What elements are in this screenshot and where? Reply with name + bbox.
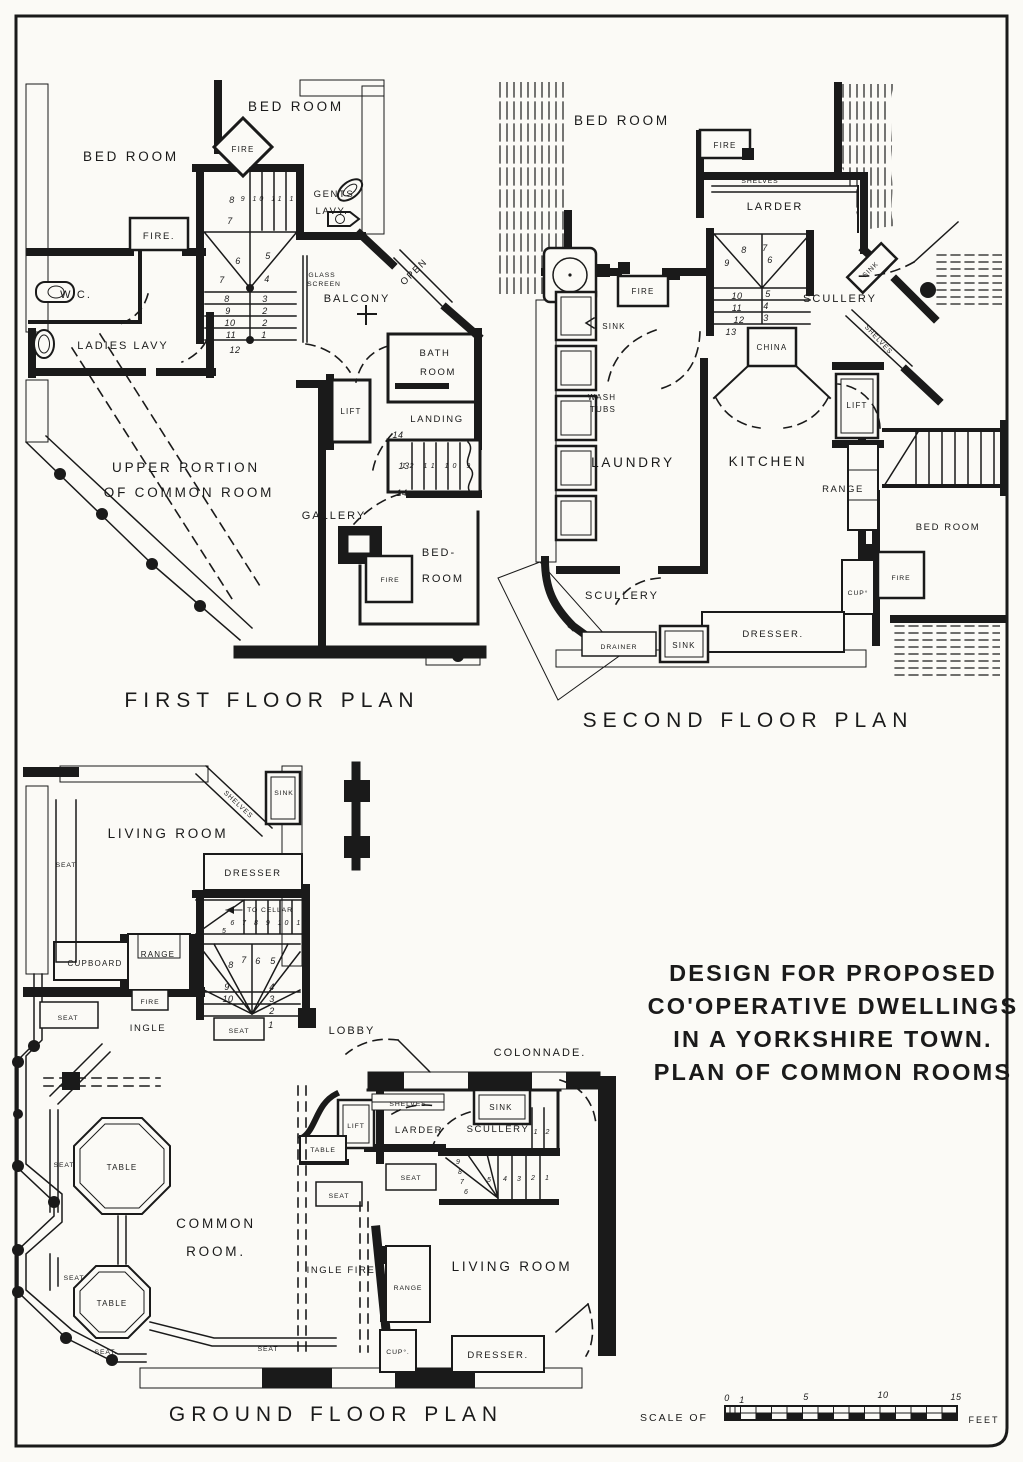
title-line-3: IN A YORKSHIRE TOWN. — [673, 1026, 993, 1052]
label-living-room-top: LIVING ROOM — [108, 826, 229, 841]
title-block: DESIGN FOR PROPOSED CO'OPERATIVE DWELLIN… — [648, 960, 1019, 1085]
label-range: RANGE — [822, 484, 864, 495]
label-colonnade: COLONNADE. — [494, 1047, 587, 1059]
stair-number: 7 — [227, 216, 233, 226]
label-fire: FIRE — [140, 999, 159, 1006]
stair-number: 8 — [224, 294, 230, 304]
label-seat: SEAT — [58, 1015, 79, 1022]
label-range-top: RANGE — [141, 950, 175, 959]
label-larder: LARDER — [395, 1125, 443, 1136]
label-shelves: SHELVES — [741, 178, 778, 185]
stair-number: 5 — [265, 251, 271, 261]
label-wc: W.C. — [60, 289, 92, 301]
stair-number: 4 — [264, 274, 270, 284]
label-fire-top: FIRE — [713, 141, 736, 150]
stair-number: 2 — [530, 1175, 535, 1182]
label-cup: CUP°. — [386, 1348, 409, 1356]
stair-number: 7 — [762, 243, 768, 253]
stair-number: 4 — [503, 1176, 507, 1183]
stair-number: 8 — [228, 960, 234, 970]
stair-number: 9 — [225, 306, 231, 316]
stair-number: 6 — [255, 956, 261, 966]
label-laundry: LAUNDRY — [591, 455, 675, 470]
label-china: CHINA — [757, 343, 788, 352]
stair-number: 1 — [261, 330, 267, 340]
label-seat: SEAT. — [95, 1349, 118, 1356]
label-gents-lavy-2: LAVY. — [315, 206, 348, 217]
stair-number: 12 11 10 9 — [402, 463, 475, 470]
label-fire-small: FIRE — [380, 577, 399, 584]
stair-number: 4 — [269, 982, 275, 992]
stair-number: 7 — [219, 275, 225, 285]
label-living-room-bottom: LIVING ROOM — [452, 1259, 573, 1274]
label-bed-room: BED ROOM — [574, 113, 670, 128]
label-fire-mid: FIRE — [631, 287, 654, 296]
stair-number: 5 — [487, 1177, 491, 1184]
label-bed-room-left: BED ROOM — [83, 149, 179, 164]
walls — [28, 766, 560, 1330]
stair-number: 1 — [268, 1020, 274, 1030]
first-floor-caption: FIRST FLOOR PLAN — [124, 689, 419, 712]
stair-number: 9 — [456, 1159, 460, 1166]
stair-number: 12 — [229, 345, 240, 355]
label-sink-left: SINK — [602, 322, 625, 331]
label-table-lift: TABLE — [310, 1147, 336, 1154]
label-fire-right: FIRE — [891, 575, 910, 582]
stair-number: 1 2 — [534, 1129, 553, 1136]
label-bed-room-small: BED- — [422, 547, 456, 559]
label-open: OPEN — [398, 257, 430, 288]
scale-tick-15: 15 — [950, 1392, 962, 1402]
title-line-4: PLAN OF COMMON ROOMS — [654, 1059, 1013, 1085]
stair-number: 11 — [732, 303, 742, 313]
ground-floor-caption: GROUND FLOOR PLAN — [169, 1403, 503, 1426]
label-scullery-bottom: SCULLERY — [585, 590, 659, 602]
stair-number: 3 — [269, 994, 275, 1004]
stair-number: 8 — [229, 195, 235, 205]
stair-number: 11 — [226, 330, 236, 340]
label-fire-diamond: FIRE — [231, 145, 254, 154]
stair-number: 6 — [464, 1189, 468, 1196]
stair-number: 8 — [741, 245, 747, 255]
label-scullery-top: SCULLERY — [803, 293, 877, 305]
scale-bar: SCALE OF 0 1 5 10 15 FEET — [640, 1390, 999, 1425]
label-cupboard: CUPBOARD — [68, 959, 123, 968]
label-gallery: GALLERY — [302, 510, 367, 522]
stair-number: 3 — [517, 1176, 521, 1183]
scale-prefix: SCALE OF — [640, 1412, 708, 1424]
scale-tick-10: 10 — [877, 1390, 888, 1400]
second-floor-caption: SECOND FLOOR PLAN — [583, 709, 914, 732]
stair-number: 2 — [261, 306, 268, 316]
label-sink-bottom: SINK — [672, 641, 695, 650]
label-scullery: SCULLERY — [467, 1124, 530, 1135]
scale-tick-0: 0 — [724, 1393, 730, 1403]
second-floor-plan: BED ROOM FIRE SHELVES LARDER SCULLERY SI… — [497, 82, 1004, 732]
fixtures — [40, 766, 544, 1372]
ground-floor-plan: LIVING ROOM SINK SHELVES DRESSER TO CELL… — [12, 766, 616, 1426]
label-table-2: TABLE — [97, 1299, 128, 1308]
label-balcony: BALCONY — [324, 293, 391, 305]
stair-number: 13 — [725, 327, 736, 337]
stair-number: 14 — [396, 488, 407, 498]
label-drainer: DRAINER — [601, 644, 638, 651]
drawing-sheet: BED ROOM BED ROOM FIRE GENTS LAVY. FIRE.… — [0, 0, 1023, 1462]
label-kitchen: KITCHEN — [729, 454, 808, 469]
first-floor-plan: BED ROOM BED ROOM FIRE GENTS LAVY. FIRE.… — [26, 80, 480, 712]
label-table-1: TABLE — [107, 1163, 138, 1172]
title-line-1: DESIGN FOR PROPOSED — [669, 960, 997, 986]
stair-number: 6 — [767, 255, 773, 265]
stair-number: 3 — [763, 313, 769, 323]
label-bed-room-right: BED ROOM — [916, 522, 981, 533]
stair-number: 10 — [224, 318, 235, 328]
label-shelves-top: SHELVES — [222, 790, 254, 820]
walls — [545, 86, 1004, 650]
label-larder: LARDER — [747, 201, 804, 213]
label-dresser: DRESSER. — [742, 629, 803, 640]
label-seat: SEAT — [401, 1175, 422, 1182]
label-bed-room-small-2: ROOM — [422, 573, 464, 585]
label-seat: SEAT — [229, 1028, 250, 1035]
stair-number: 5 — [270, 956, 276, 966]
label-ingle: INGLE — [130, 1023, 167, 1034]
label-seat: SEAT — [258, 1346, 279, 1353]
label-seat: SEAT — [54, 1162, 75, 1169]
stair-number: 9 — [724, 258, 730, 268]
label-seat: SEAT — [64, 1275, 85, 1282]
title-line-2: CO'OPERATIVE DWELLINGS — [648, 993, 1019, 1019]
label-common-room-2: ROOM. — [186, 1244, 246, 1259]
stair-number: 2 — [268, 1006, 275, 1016]
label-lift: LIFT — [846, 401, 867, 410]
scale-suffix: FEET — [968, 1415, 999, 1425]
label-dresser-top: DRESSER — [224, 868, 281, 879]
label-fire-left: FIRE. — [143, 231, 175, 242]
stair-number: 1 — [545, 1175, 549, 1182]
scale-tick-1: 1 — [739, 1395, 745, 1405]
label-glass-screen-2: SCREEN — [307, 281, 341, 288]
stair-number: 5 — [222, 928, 226, 935]
label-gents-lavy: GENTS — [314, 189, 355, 200]
floor-plan-drawing: BED ROOM BED ROOM FIRE GENTS LAVY. FIRE.… — [0, 0, 1023, 1462]
label-bath-room-2: ROOM — [420, 367, 456, 378]
stair-number: 10 — [731, 291, 742, 301]
stair-number: 7 — [241, 955, 247, 965]
label-cupboard: CUP° — [848, 589, 869, 597]
stair-number: 2 — [261, 318, 268, 328]
label-wash-tubs-2: TUBS — [590, 405, 616, 414]
stair-number: 3 — [262, 294, 268, 304]
label-shelves-diag: SHELVES — [863, 324, 893, 356]
stair-number: 12 — [733, 315, 744, 325]
stair-numbers: 8 7 9 6 10 5 11 4 12 3 13 — [724, 243, 773, 337]
stair-number: 6 7 8 9 10 11 — [230, 920, 309, 927]
stair-number: 10 — [222, 994, 233, 1004]
label-common-room: COMMON — [176, 1216, 256, 1231]
label-wash-tubs: WASH — [588, 393, 617, 402]
label-bed-room-top: BED ROOM — [248, 99, 344, 114]
label-shelves-mid: SHELVES — [389, 1101, 426, 1108]
label-seat: SEAT — [56, 862, 77, 869]
stair-number: 4 — [763, 301, 769, 311]
label-upper-portion-2: OF COMMON ROOM — [104, 485, 274, 500]
label-upper-portion: UPPER PORTION — [112, 460, 260, 475]
label-bath-room: BATH — [419, 348, 450, 359]
label-lift: LIFT — [340, 407, 361, 416]
label-seat: SEAT — [329, 1193, 350, 1200]
label-sink-top: SINK — [274, 790, 293, 797]
label-dresser-bottom: DRESSER. — [467, 1350, 528, 1361]
stair-number: 7 — [460, 1179, 465, 1186]
stair-number: 5 — [765, 289, 771, 299]
stair-number: 9 — [224, 982, 230, 992]
label-lift: LIFT — [347, 1123, 365, 1130]
label-lobby: LOBBY — [329, 1025, 376, 1037]
label-ingle-fire: INGLE FIRE — [307, 1265, 376, 1276]
label-landing: LANDING — [410, 414, 463, 425]
label-to-cellar: TO CELLAR — [247, 907, 293, 914]
scale-tick-5: 5 — [803, 1392, 809, 1402]
label-glass-screen: GLASS — [308, 272, 335, 279]
stair-number: 6 — [235, 256, 241, 266]
stair-number: 8 — [458, 1169, 462, 1176]
label-sink-mid: SINK — [489, 1103, 512, 1112]
stair-number: 14 — [392, 430, 403, 440]
label-ladies-lavy: LADIES LAVY — [77, 340, 169, 352]
label-range-bottom: RANGE — [394, 1285, 423, 1292]
stair-number: 9 10 11 12 — [241, 196, 304, 203]
